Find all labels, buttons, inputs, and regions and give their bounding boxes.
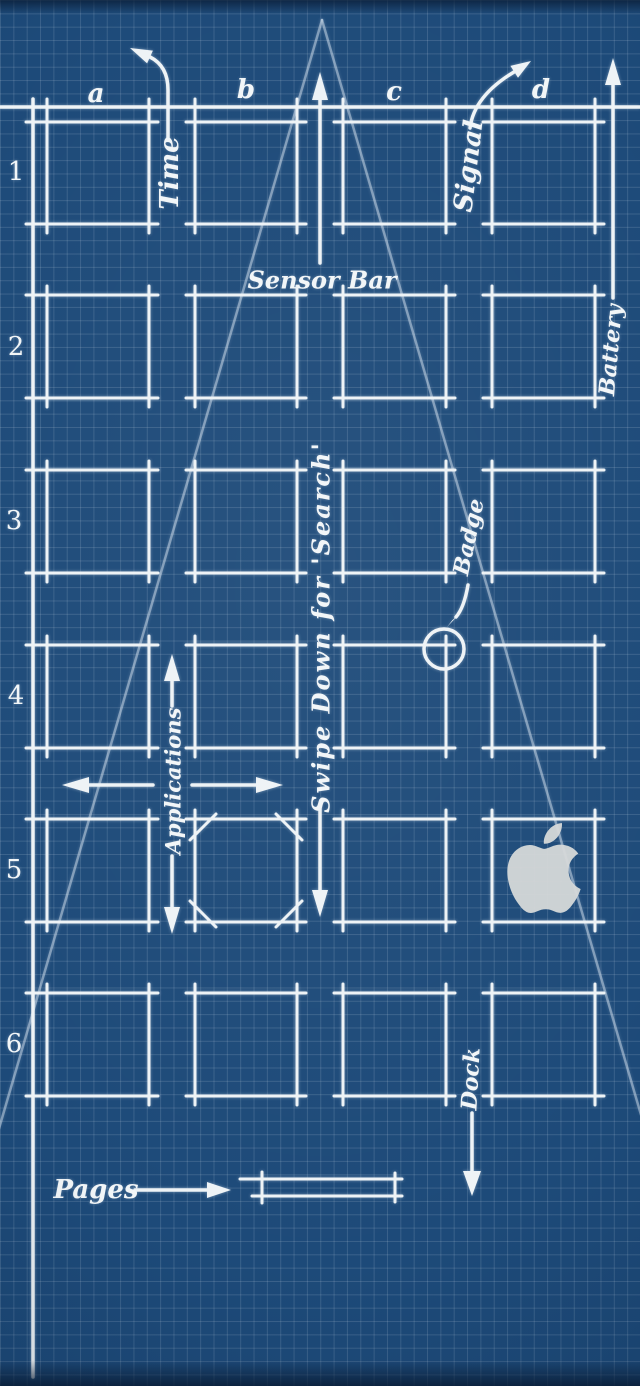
applications-label: Applications <box>161 708 186 855</box>
time-label: Time <box>155 136 185 209</box>
applications-arrow-left-head <box>62 777 89 793</box>
swipe-search-label: Swipe Down for 'Search' <box>307 441 336 813</box>
row-label-2: 2 <box>8 332 25 362</box>
apple-logo-icon <box>499 816 589 920</box>
dock-arrow-head <box>463 1171 481 1196</box>
time-arrow <box>150 57 168 140</box>
battery-arrow-head <box>605 58 621 85</box>
blueprint-wallpaper: a b c d 1 2 3 4 5 6 Time Signal Sensor B… <box>0 0 640 1386</box>
row-label-5: 5 <box>6 855 23 885</box>
time-arrow-head <box>130 48 153 63</box>
badge-arrow-head <box>447 613 461 627</box>
applications-arrow-right-head <box>256 777 283 793</box>
column-label-c: c <box>386 77 402 107</box>
row-label-1: 1 <box>8 157 25 187</box>
swipe-search-arrow-head <box>312 890 328 917</box>
row-label-4: 4 <box>8 681 25 711</box>
badge-arrow <box>456 585 468 617</box>
signal-arrow-head <box>510 61 531 78</box>
column-label-a: a <box>88 79 105 109</box>
column-label-b: b <box>237 75 255 105</box>
pages-label: Pages <box>53 1175 138 1205</box>
badge-circle <box>424 629 464 669</box>
pages-arrow-head <box>207 1182 231 1198</box>
applications-arrow-up-head <box>164 654 180 681</box>
sensor-bar-arrow-head <box>312 72 328 100</box>
dock-label: Dock <box>456 1047 485 1111</box>
row-label-6: 6 <box>6 1029 23 1059</box>
applications-arrow-down-head <box>164 907 180 934</box>
column-label-d: d <box>532 75 550 105</box>
row-label-3: 3 <box>6 506 23 536</box>
sensor-bar-label: Sensor Bar <box>247 266 396 295</box>
